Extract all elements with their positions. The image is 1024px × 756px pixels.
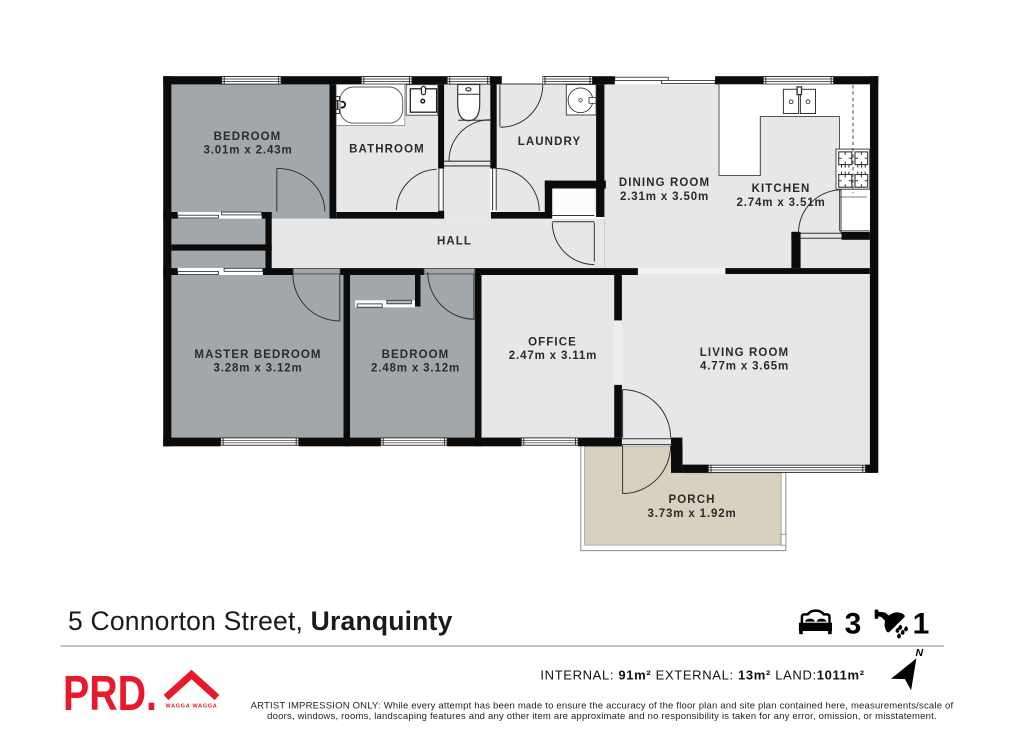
svg-text:1: 1 (913, 608, 930, 641)
svg-text:KITCHEN: KITCHEN (752, 183, 811, 195)
svg-text:3.01m x 2.43m: 3.01m x 2.43m (203, 145, 292, 157)
svg-text:LIVING ROOM: LIVING ROOM (700, 347, 789, 359)
svg-text:WAGGA WAGGA: WAGGA WAGGA (165, 704, 217, 710)
svg-text:3.73m x 1.92m: 3.73m x 1.92m (647, 508, 736, 520)
svg-text:3.28m x 3.12m: 3.28m x 3.12m (213, 363, 302, 375)
svg-text:2.48m x 3.12m: 2.48m x 3.12m (371, 363, 460, 375)
svg-text:3: 3 (845, 608, 862, 641)
svg-text:ARTIST IMPRESSION ONLY: While: ARTIST IMPRESSION ONLY: While every atte… (251, 701, 954, 712)
svg-text:OFFICE: OFFICE (528, 337, 577, 349)
svg-text:INTERNAL: 91m² EXTERNAL: 13m: INTERNAL: 91m² EXTERNAL: 13m² LAND:1011m… (540, 668, 864, 683)
svg-text:LAUNDRY: LAUNDRY (518, 136, 582, 148)
svg-text:BATHROOM: BATHROOM (349, 144, 425, 156)
svg-text:PRD.: PRD. (63, 667, 157, 721)
svg-text:2.74m x 3.51m: 2.74m x 3.51m (736, 197, 825, 209)
svg-text:doors, windows, rooms, landsca: doors, windows, rooms, landscaping featu… (267, 711, 937, 722)
svg-text:2.31m x 3.50m: 2.31m x 3.50m (620, 191, 709, 203)
svg-text:BEDROOM: BEDROOM (214, 131, 282, 143)
svg-text:HALL: HALL (437, 236, 472, 248)
svg-text:5 Connorton Street, Uranquinty: 5 Connorton Street, Uranquinty (68, 606, 453, 636)
svg-text:PORCH: PORCH (668, 494, 715, 506)
svg-text:DINING ROOM: DINING ROOM (619, 177, 710, 189)
svg-text:4.77m x 3.65m: 4.77m x 3.65m (700, 361, 789, 373)
svg-text:MASTER BEDROOM: MASTER BEDROOM (194, 349, 321, 361)
svg-text:2.47m x 3.11m: 2.47m x 3.11m (509, 350, 597, 362)
svg-text:N: N (916, 647, 924, 659)
svg-text:BEDROOM: BEDROOM (382, 349, 450, 361)
